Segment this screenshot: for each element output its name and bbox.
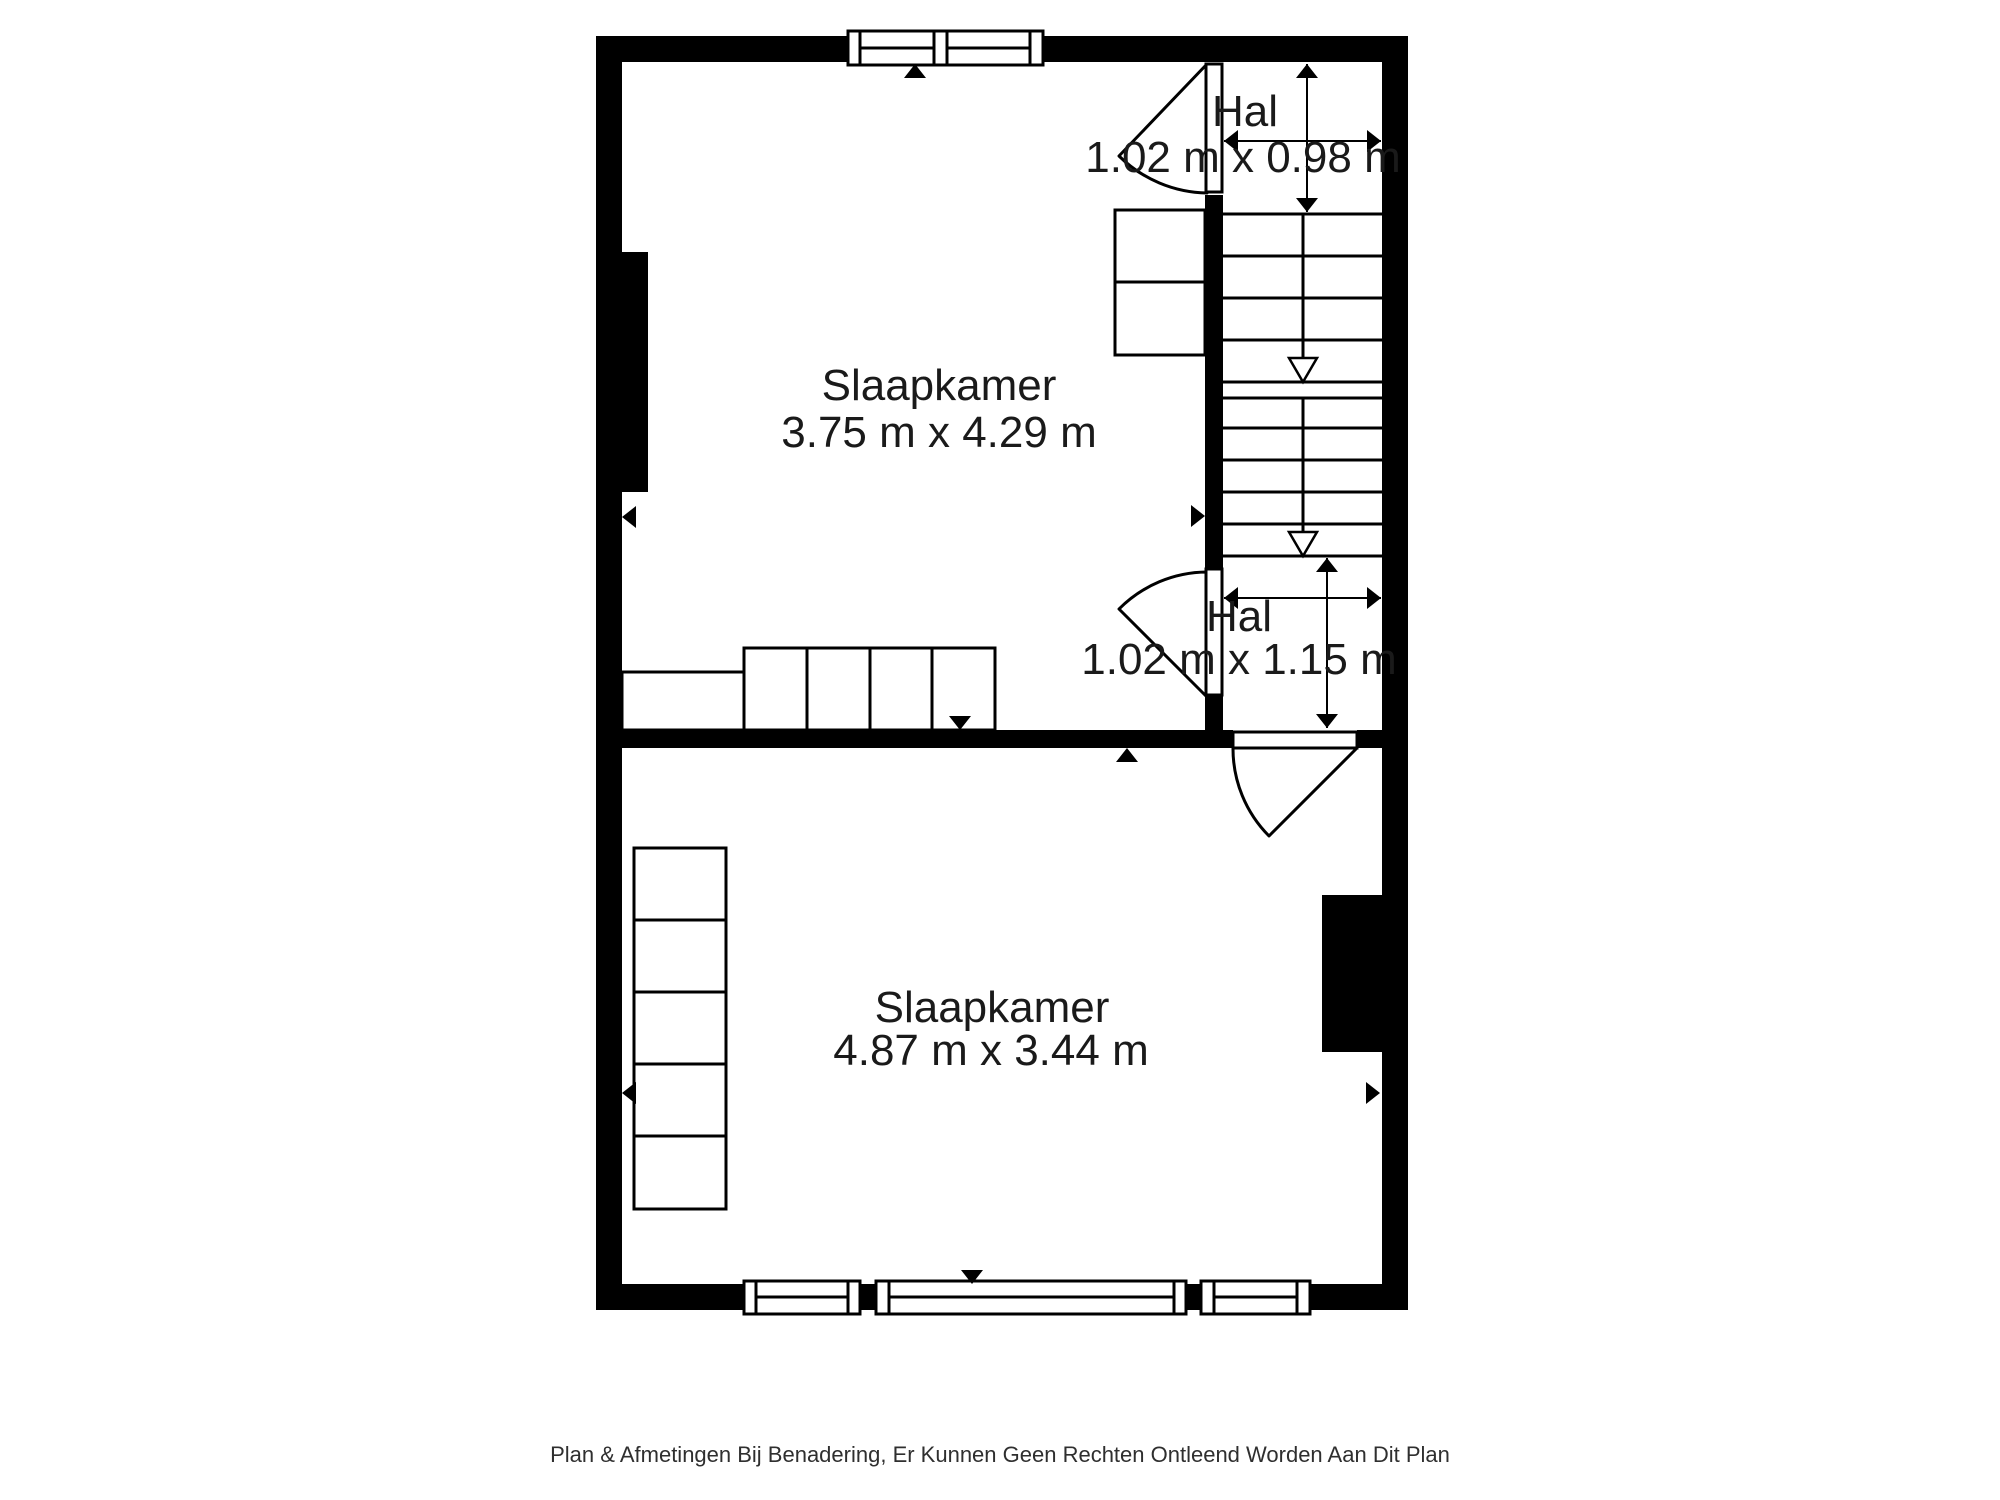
floor-plan-svg: Slaapkamer 3.75 m x 4.29 m Hal 1.02 m x … xyxy=(0,0,2000,1500)
wall-top-left-segment xyxy=(596,36,848,62)
cabinet-top-bedroom xyxy=(1115,210,1205,355)
room-label-bedroom-bottom: Slaapkamer xyxy=(875,983,1110,1032)
window-bottom-center xyxy=(876,1281,1186,1314)
wall-bottom-seg-1 xyxy=(596,1284,744,1310)
room-dims-hall-top: 1.02 m x 0.98 m xyxy=(1085,133,1400,182)
closet-column-bottom-bedroom xyxy=(634,848,726,1209)
room-dims-hall-mid: 1.02 m x 1.15 m xyxy=(1081,635,1396,684)
wall-left xyxy=(596,36,622,1310)
wall-divider-right xyxy=(1357,730,1408,748)
floor-plan-page: Slaapkamer 3.75 m x 4.29 m Hal 1.02 m x … xyxy=(0,0,2000,1500)
door-leaf xyxy=(1233,732,1357,748)
wall-divider-left xyxy=(596,730,1233,748)
wall-pier-left xyxy=(622,252,648,492)
wall-pier-right xyxy=(1322,895,1382,1052)
room-dims-bedroom-bottom: 4.87 m x 3.44 m xyxy=(833,1026,1148,1075)
wall-top-right-segment xyxy=(1043,36,1408,62)
room-dims-bedroom-top: 3.75 m x 4.29 m xyxy=(781,408,1096,457)
room-label-bedroom-top: Slaapkamer xyxy=(822,361,1057,410)
room-label-hall-mid: Hal xyxy=(1206,592,1272,641)
wall-interior-vertical-upper xyxy=(1205,195,1223,568)
plan-background xyxy=(0,0,2000,1500)
window-bottom-right xyxy=(1201,1281,1310,1314)
wall-bottom-seg-2 xyxy=(860,1284,876,1310)
closet-outline xyxy=(634,848,726,1209)
room-label-hall-top: Hal xyxy=(1212,87,1278,136)
plan-caption: Plan & Afmetingen Bij Benadering, Er Kun… xyxy=(550,1442,1450,1467)
wall-bottom-seg-3 xyxy=(1186,1284,1201,1310)
window-bottom-left xyxy=(744,1281,860,1314)
window-top xyxy=(848,31,1043,65)
wall-bottom-seg-4 xyxy=(1310,1284,1408,1310)
shelf-top-bedroom xyxy=(622,672,744,730)
shelf-outline xyxy=(622,672,744,730)
